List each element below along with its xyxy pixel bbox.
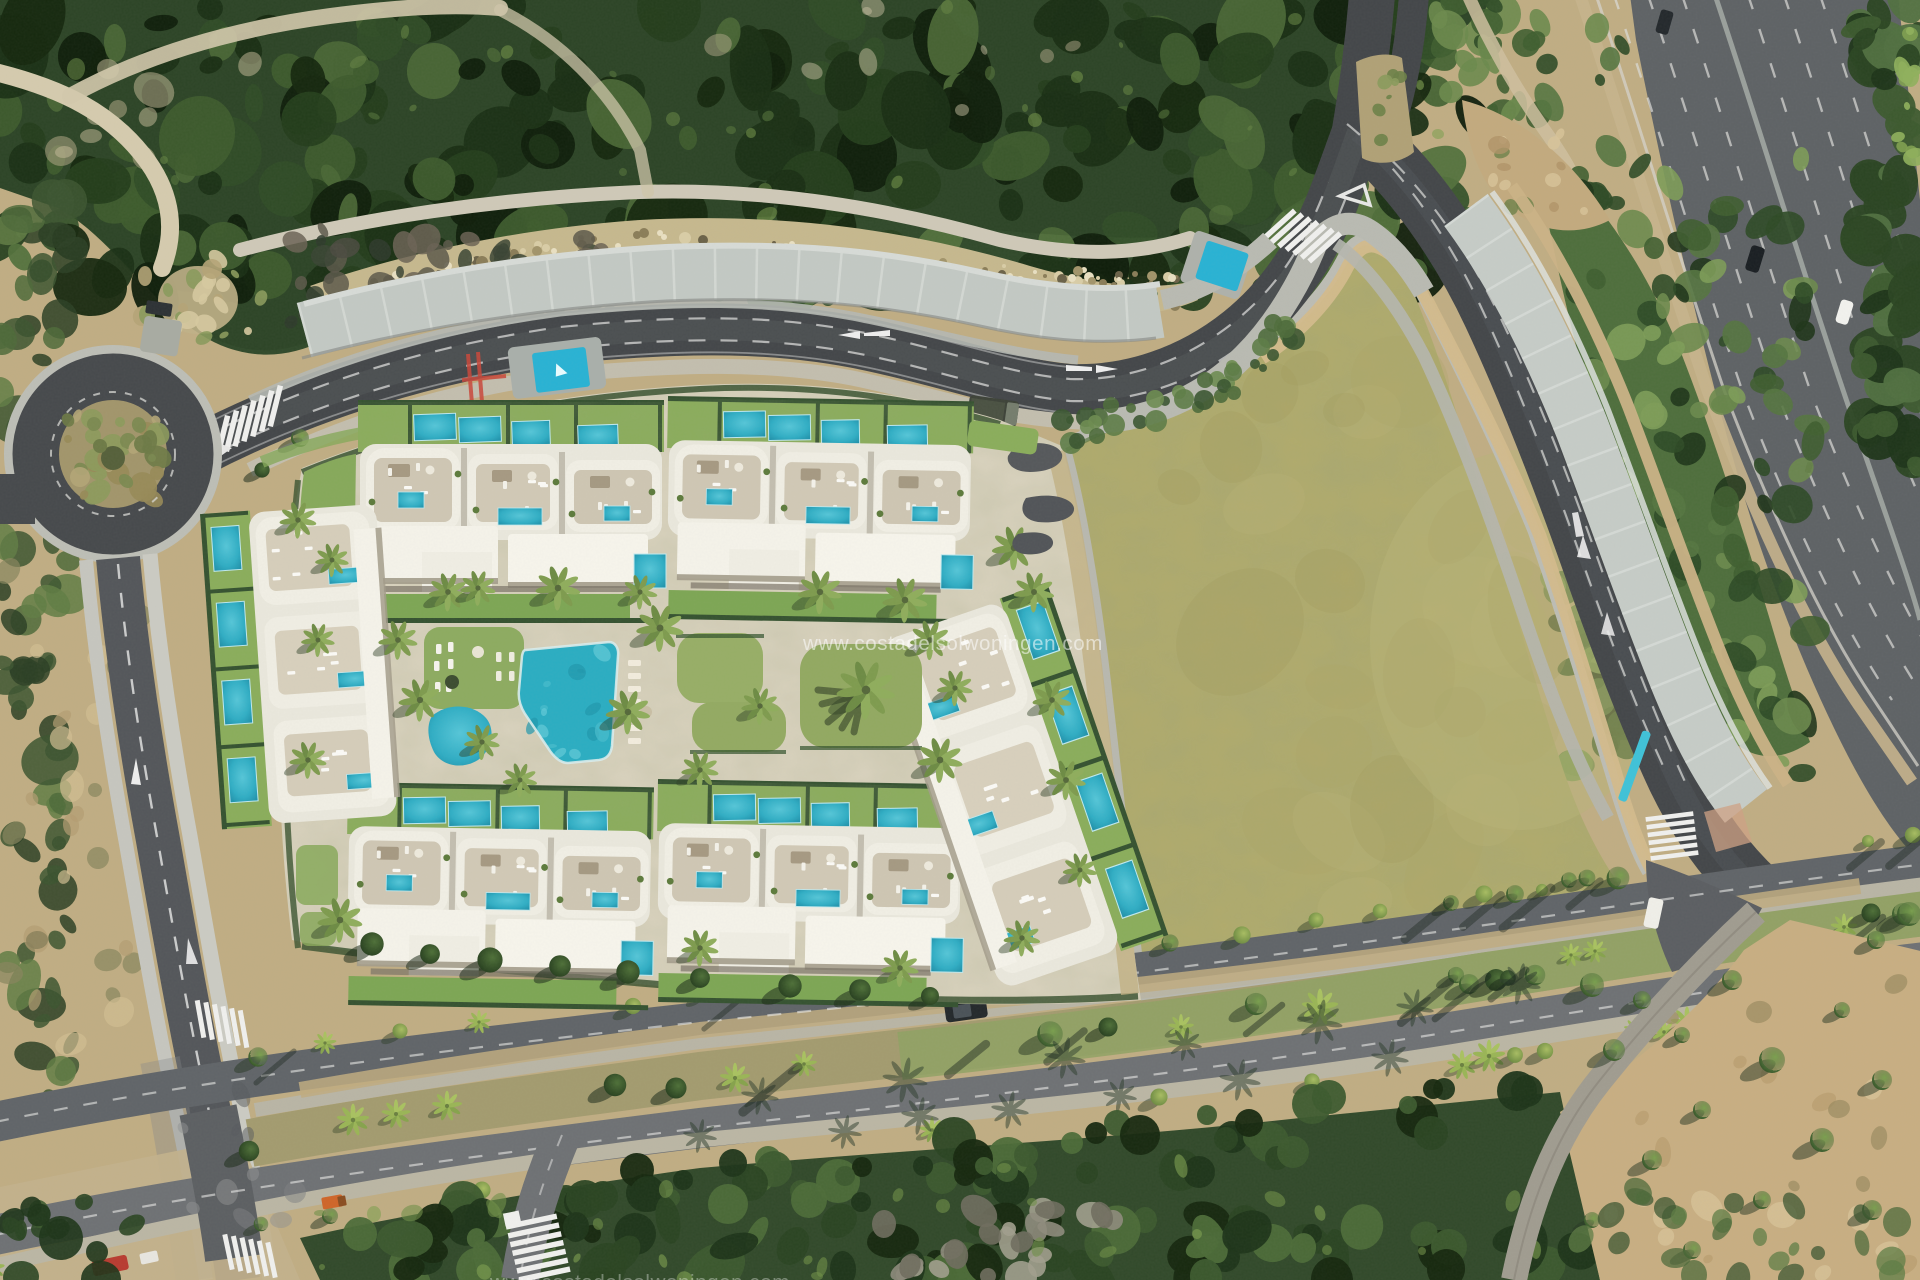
svg-text:www.costadelsolwoningen.com: www.costadelsolwoningen.com [802, 632, 1103, 655]
svg-text:www.costadelsolwoningen.com: www.costadelsolwoningen.com [489, 1271, 790, 1280]
